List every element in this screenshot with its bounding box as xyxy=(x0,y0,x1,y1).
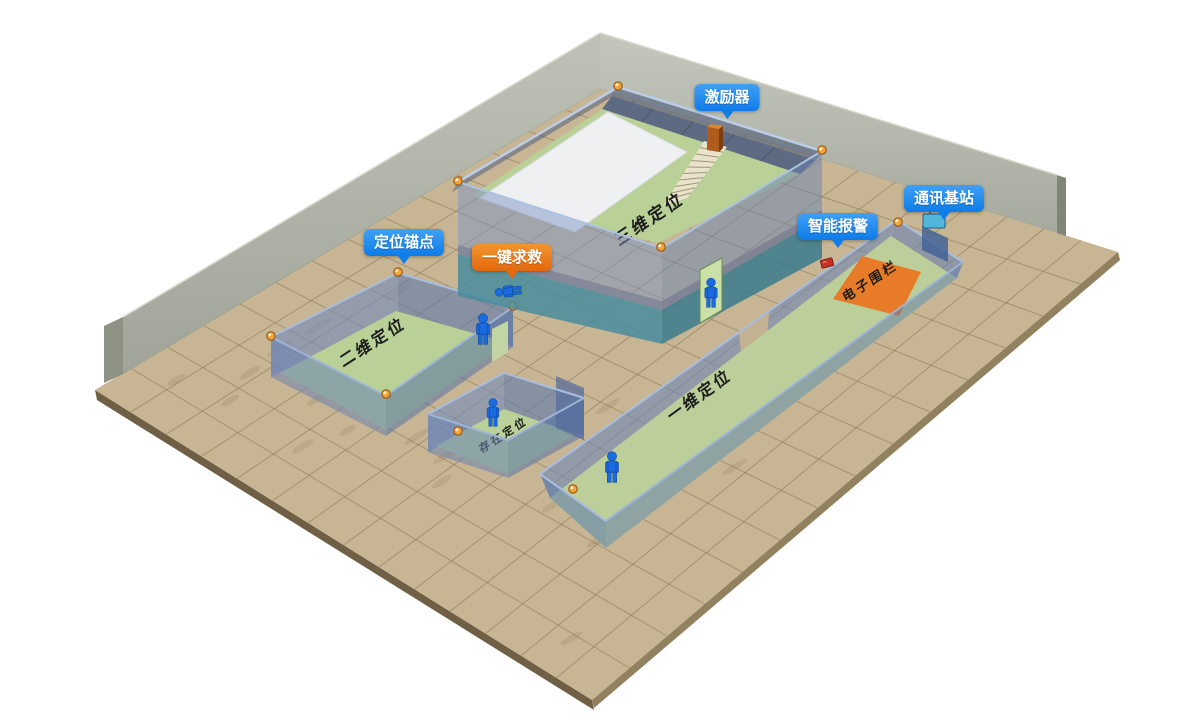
anchor-icon xyxy=(454,427,462,435)
anchor-icon xyxy=(569,485,577,493)
callout-comm-station[interactable]: 通讯基站 xyxy=(904,185,984,212)
positioning-scene: 二维定位 存在定位 电子围栏 一维定位 xyxy=(0,0,1200,723)
callout-anchor-point[interactable]: 定位锚点 xyxy=(364,229,444,256)
callout-sos[interactable]: 一键求救 xyxy=(472,244,552,271)
anchor-icon xyxy=(614,82,622,90)
anchor-icon xyxy=(894,218,902,226)
callout-exciter[interactable]: 激励器 xyxy=(694,84,759,111)
callout-smart-alarm[interactable]: 智能报警 xyxy=(798,213,878,240)
anchor-icon xyxy=(382,390,390,398)
exciter-icon xyxy=(707,124,723,152)
scene-3d-view: 二维定位 存在定位 电子围栏 一维定位 xyxy=(0,0,1200,723)
anchor-icon xyxy=(394,268,402,276)
anchor-icon xyxy=(454,177,462,185)
anchor-icon xyxy=(267,332,275,340)
anchor-icon xyxy=(818,146,826,154)
anchor-icon xyxy=(657,243,665,251)
